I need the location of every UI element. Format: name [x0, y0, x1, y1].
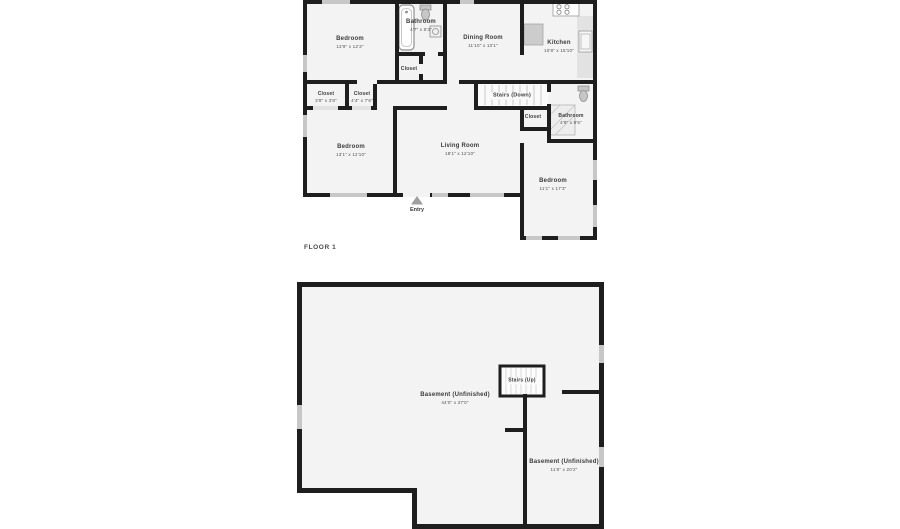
label-closet-3: Closet: [401, 66, 417, 72]
label-basement-main: Basement (Unfinished) 44'0" x 37'0": [420, 392, 490, 406]
kitchen-sink-icon: [579, 31, 592, 52]
label-closet-2: Closet 4'4" x 7'6": [351, 91, 373, 103]
label-stairs-up: Stairs (Up): [506, 378, 537, 385]
label-bedroom-1: Bedroom 13'9" x 12'3": [336, 36, 364, 50]
label-dining-room: Dining Room 11'10" x 13'1": [463, 35, 503, 49]
entry-label: Entry: [410, 207, 424, 213]
label-basement-second: Basement (Unfinished) 11'6" x 20'2": [529, 459, 599, 473]
label-closet-4: Closet: [525, 114, 541, 120]
floorplan-drawing: [0, 0, 900, 529]
label-kitchen: Kitchen 10'8" x 15'10": [544, 40, 574, 54]
entry-arrow-icon: [411, 196, 423, 205]
floorplan-page: Bedroom 13'9" x 12'3" Bathroom 4'7" x 8'…: [0, 0, 900, 529]
label-closet-1: Closet 3'8" x 3'8": [315, 91, 337, 103]
refrigerator-icon: [524, 24, 543, 45]
label-living-room: Living Room 18'1" x 12'10": [441, 143, 480, 157]
label-bedroom-2: Bedroom 13'1" x 12'10": [336, 144, 366, 158]
label-bathroom-1: Bathroom 4'7" x 8'3": [406, 19, 436, 33]
label-bathroom-2: Bathroom 4'9" x 8'5": [558, 113, 583, 125]
label-stairs-down: Stairs (Down): [491, 93, 533, 100]
stove-icon: [553, 3, 579, 16]
floor1-title: FLOOR 1: [304, 244, 336, 251]
label-bedroom-3: Bedroom 11'1" x 17'3": [539, 178, 567, 192]
